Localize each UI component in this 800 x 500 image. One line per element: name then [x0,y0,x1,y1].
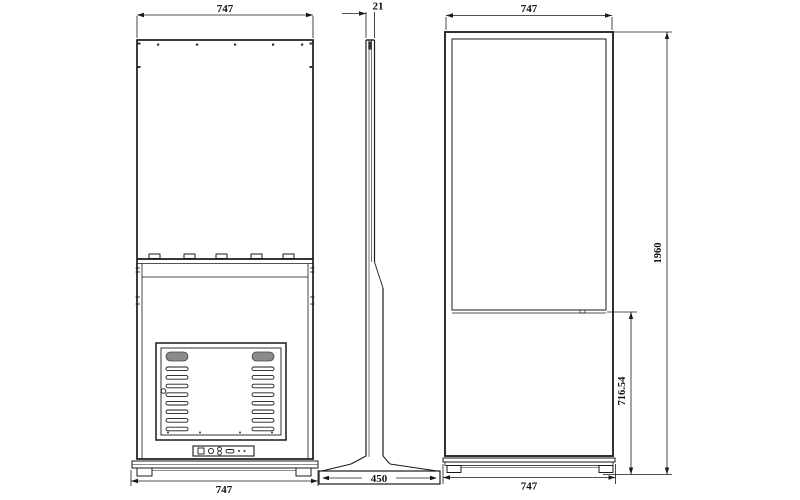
arrowhead-icon [311,479,318,483]
back-hinge-strip [137,254,313,264]
arrowhead-icon [137,13,144,17]
vent-slot [166,376,188,380]
side-thickness-dimension [342,11,375,38]
back-base [132,461,318,476]
io-dot-icon [244,450,246,452]
side-back-bulge-chamfer [375,262,384,288]
arrowhead-icon [629,312,633,319]
arrowhead-icon [430,476,437,480]
front-top-width-dimension [446,13,612,30]
vent-slot [252,401,274,405]
power-switch-icon [198,448,204,454]
screen-frame [452,39,606,310]
arrowhead-icon [605,13,612,17]
foot-pad [447,466,461,473]
vent-slot [166,410,188,414]
arrowhead-icon [446,13,453,17]
vent-slot [166,419,188,423]
speaker-grille-icon [252,352,274,361]
vent-slot [166,393,188,397]
side-column-profile [366,40,383,457]
lower-section-height-label: 716.54 [617,376,628,406]
usb-port-icon [218,447,222,451]
usb-port-icon [218,451,222,455]
front-top-width-label: 747 [521,3,538,15]
side-view: 21 450 [319,1,440,486]
arrowhead-icon [322,476,329,480]
vent-slot [166,367,188,371]
arrowhead-icon [609,475,616,479]
io-panel [193,446,254,456]
arrowhead-icon [443,475,450,479]
vent-slot [166,427,188,431]
vent-slot [166,401,188,405]
arrowhead-icon [131,479,138,483]
overall-height-label: 1960 [653,243,664,264]
speaker-grille-icon [166,352,188,361]
back-top-width-dimension [137,13,313,38]
vent-panel-screws [167,432,273,434]
vent-slot [252,384,274,388]
front-view: 747 747 1960 [443,3,672,493]
display-stand-three-view-drawing: 747 [0,0,800,500]
vent-slot [252,419,274,423]
front-base [443,458,615,473]
back-view: 747 [131,3,318,496]
side-thickness-label: 21 [373,1,384,13]
back-bottom-width-label: 747 [216,484,233,496]
round-port-icon [208,448,213,453]
foot-pad [137,468,152,476]
vent-slot [252,410,274,414]
io-dot-icon [238,450,240,452]
vent-slot [252,393,274,397]
arrowhead-icon [306,13,313,17]
vent-slot [252,427,274,431]
foot-pad [296,468,311,476]
front-cabinet-outline [445,32,613,456]
keyhole-icon [161,389,166,394]
hdmi-port-icon [226,450,234,453]
technical-drawing-canvas: 747 [0,0,800,500]
back-lower-cabinet-frame [136,264,315,460]
arrowhead-icon [665,32,669,39]
arrowhead-icon [359,11,366,15]
back-top-width-label: 747 [217,3,234,15]
arrowhead-icon [629,468,633,475]
vent-panel [156,343,286,440]
vent-slot [252,367,274,371]
back-screw-marks [138,43,313,69]
foot-pad [599,466,613,473]
side-base-depth-label: 450 [371,473,388,485]
front-bottom-width-label: 747 [521,481,538,493]
vent-slot [166,384,188,388]
vent-slot [252,376,274,380]
arrowhead-icon [665,468,669,475]
